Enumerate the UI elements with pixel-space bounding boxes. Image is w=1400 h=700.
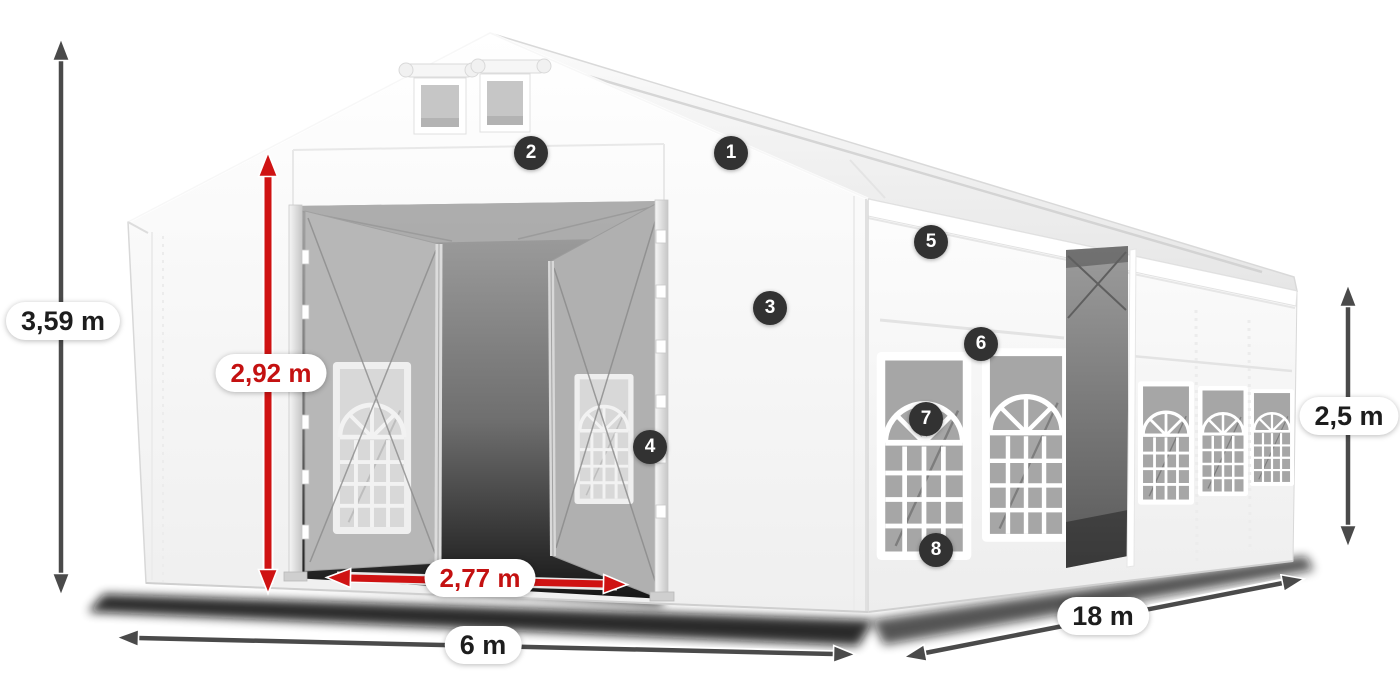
entrance-door-right <box>551 201 661 599</box>
side-window-5 <box>1250 389 1294 486</box>
tent-illustration <box>0 0 1400 700</box>
feature-marker-3[interactable]: 3 <box>753 291 787 325</box>
feature-marker-8[interactable]: 8 <box>919 533 953 567</box>
entrance-door-left <box>300 211 439 571</box>
feature-marker-7[interactable]: 7 <box>909 402 943 436</box>
side-window-1 <box>877 352 972 560</box>
feature-marker-6[interactable]: 6 <box>964 327 998 361</box>
side-window-3 <box>1138 381 1194 504</box>
side-window-2 <box>982 348 1070 542</box>
front-entrance <box>284 200 674 601</box>
side-window-4 <box>1198 386 1248 496</box>
dimension-label-side-length: 18 m <box>1057 597 1149 635</box>
dimension-label-total-height: 3,59 m <box>6 302 120 340</box>
dimension-label-entrance-height: 2,92 m <box>216 354 327 392</box>
feature-marker-1[interactable]: 1 <box>714 136 748 170</box>
tent-dimension-diagram: 3,59 m 2,92 m 2,77 m 6 m 18 m 2,5 m 1 2 … <box>0 0 1400 700</box>
dimension-label-wall-height: 2,5 m <box>1299 397 1398 435</box>
feature-marker-4[interactable]: 4 <box>633 430 667 464</box>
dimension-label-front-width: 6 m <box>445 626 522 664</box>
side-entrance-opening <box>1066 246 1128 568</box>
dimension-label-entrance-width: 2,77 m <box>425 559 536 597</box>
feature-marker-5[interactable]: 5 <box>914 225 948 259</box>
feature-marker-2[interactable]: 2 <box>514 136 548 170</box>
